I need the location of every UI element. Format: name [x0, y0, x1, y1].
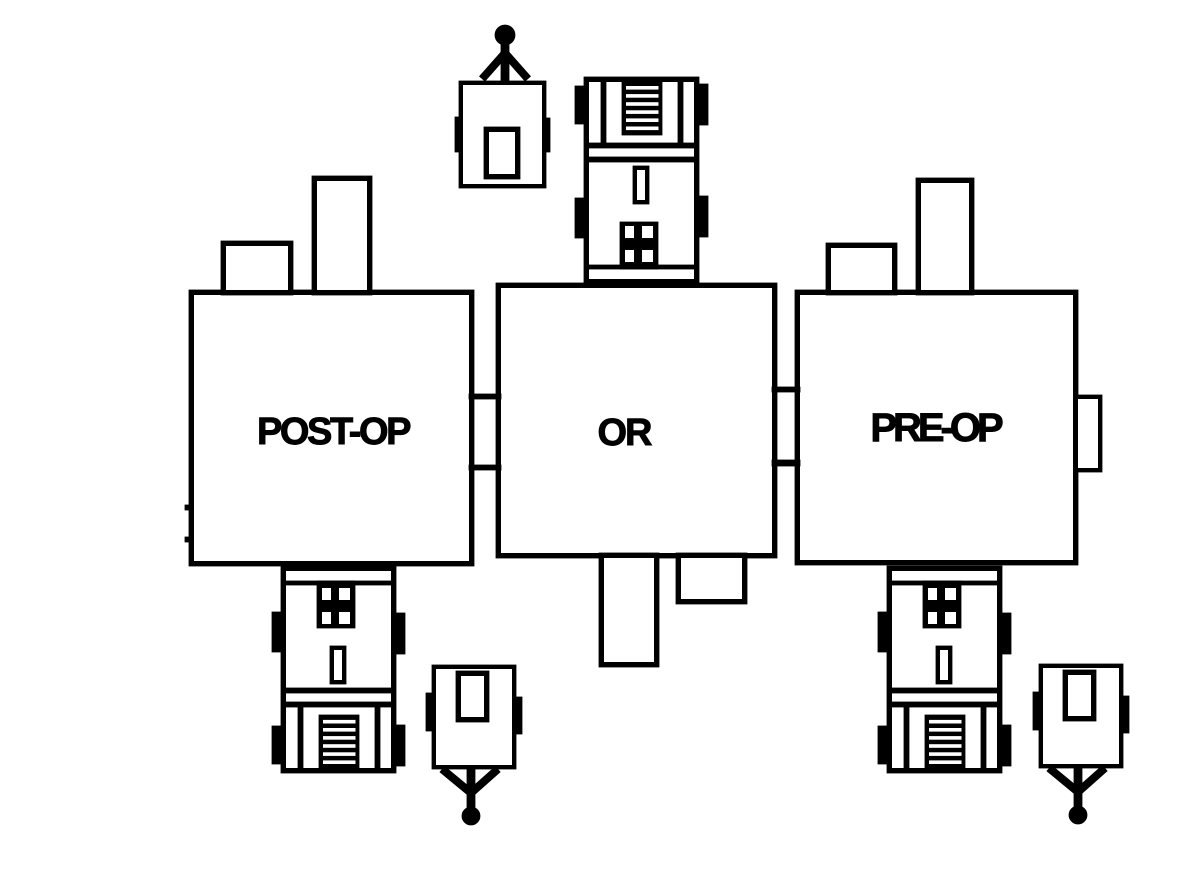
svg-text:POST-OP: POST-OP	[257, 411, 411, 453]
svg-text:OR: OR	[598, 412, 653, 454]
svg-text:PRE-OP: PRE-OP	[870, 406, 1003, 450]
